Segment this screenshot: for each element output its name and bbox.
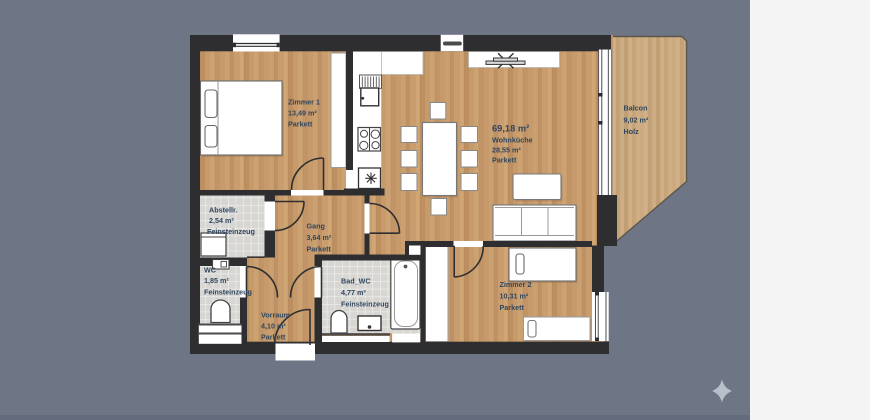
svg-text:WC: WC xyxy=(204,266,216,275)
svg-text:Zimmer 1: Zimmer 1 xyxy=(288,98,320,107)
svg-text:Parkett: Parkett xyxy=(288,120,313,129)
svg-text:13,49 m²: 13,49 m² xyxy=(288,109,317,118)
svg-text:3,64 m²: 3,64 m² xyxy=(307,233,332,242)
svg-text:4,10 m²: 4,10 m² xyxy=(261,322,286,331)
svg-text:Balcon: Balcon xyxy=(624,104,648,113)
svg-text:Parkett: Parkett xyxy=(492,156,517,165)
svg-text:Feinsteinzeug: Feinsteinzeug xyxy=(207,227,255,236)
svg-text:Gang: Gang xyxy=(307,222,325,231)
svg-text:Feinsteinzeug: Feinsteinzeug xyxy=(204,288,252,297)
svg-text:Bad_WC: Bad_WC xyxy=(341,277,371,286)
svg-text:Vorraum: Vorraum xyxy=(261,311,290,320)
svg-text:Parkett: Parkett xyxy=(500,303,525,312)
svg-text:2,54 m²: 2,54 m² xyxy=(209,216,234,225)
svg-text:Wohnküche: Wohnküche xyxy=(492,136,533,145)
svg-text:Holz: Holz xyxy=(624,127,640,136)
svg-text:Feinsteinzeug: Feinsteinzeug xyxy=(341,300,389,309)
svg-text:4,77 m³: 4,77 m³ xyxy=(341,288,366,297)
svg-text:Parkett: Parkett xyxy=(307,245,332,254)
svg-text:Parkett: Parkett xyxy=(261,333,286,342)
svg-text:Abstellr.: Abstellr. xyxy=(209,206,237,215)
svg-text:1,85 m²: 1,85 m² xyxy=(204,276,229,285)
svg-text:9,02 m²: 9,02 m² xyxy=(624,116,649,125)
svg-text:69,18 m²: 69,18 m² xyxy=(492,124,529,134)
svg-text:Zimmer 2: Zimmer 2 xyxy=(500,280,532,289)
svg-text:10,31 m²: 10,31 m² xyxy=(500,292,529,301)
svg-text:28,55 m²: 28,55 m² xyxy=(492,146,521,155)
